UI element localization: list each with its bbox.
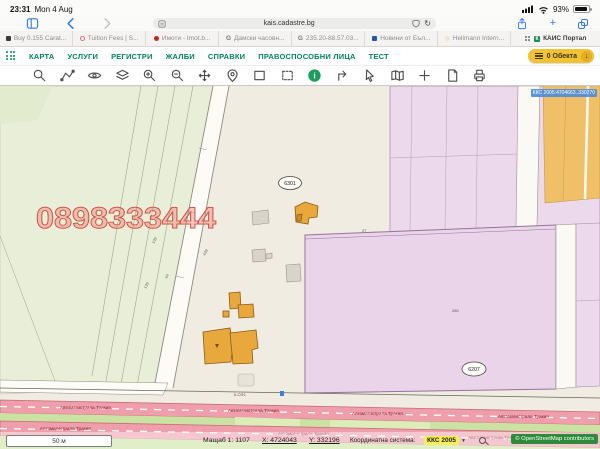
svg-text:Автомагистрала Тракия: Автомагистрала Тракия xyxy=(228,408,279,413)
chevron-down-icon[interactable]: ▼ xyxy=(461,438,466,444)
print-icon[interactable] xyxy=(472,68,487,83)
wifi-icon xyxy=(538,5,549,14)
download-icon[interactable]: ↓ xyxy=(581,51,592,62)
ipad-screen: 23:31 Mon 4 Aug 93% xyxy=(0,0,600,449)
road-designation: 6-ОФ1 xyxy=(234,392,247,397)
tab-favicon xyxy=(154,36,159,41)
back-button-icon[interactable] xyxy=(65,17,76,30)
info-tool-icon[interactable]: i xyxy=(307,68,322,83)
clock: 23:31 xyxy=(10,5,30,14)
battery-percent: 93% xyxy=(553,5,569,14)
tab-label: Новини от Бъл... xyxy=(380,35,430,42)
layers-icon[interactable] xyxy=(115,68,130,83)
page-settings-icon[interactable] xyxy=(158,20,166,28)
coordinate-x: X: 4724043 xyxy=(262,437,297,444)
svg-text:Автомагистрала Тракия: Автомагистрала Тракия xyxy=(60,405,111,410)
zoom-in-icon[interactable] xyxy=(142,68,157,83)
industrial-area xyxy=(543,86,600,203)
tab-hellmann[interactable]: Hellmann Intern... xyxy=(438,31,511,46)
osm-attribution[interactable]: © OpenStreetMap contributors xyxy=(511,434,598,444)
measure-line-icon[interactable] xyxy=(60,68,75,83)
tab-label: Tuition Fees | S... xyxy=(88,35,139,42)
pan-icon[interactable] xyxy=(197,68,212,83)
visibility-eye-icon[interactable] xyxy=(87,68,102,83)
svg-text:Автомагистрала Тракия: Автомагистрала Тракия xyxy=(498,414,549,419)
tab-label: Имоти - Imot.b... xyxy=(162,35,210,42)
tab-favicon xyxy=(80,36,85,41)
tab-favicon xyxy=(6,36,11,41)
nav-item-karta[interactable]: КАРТА xyxy=(29,52,54,61)
parcel-number: 280 xyxy=(452,308,459,313)
nav-item-spravki[interactable]: СПРАВКИ xyxy=(208,52,245,61)
tab-label: Дамски часовн... xyxy=(234,35,284,42)
browser-toolbar: kais.cadastre.bg ↻ + xyxy=(0,16,600,31)
nav-item-test[interactable]: ТЕСТ xyxy=(369,52,389,61)
add-icon[interactable] xyxy=(417,68,432,83)
tab-favicon xyxy=(372,36,377,41)
grid-icon xyxy=(525,36,531,42)
kais-favicon: К xyxy=(534,36,540,42)
svg-text:Автомагистрала Тракия: Автомагистрала Тракия xyxy=(352,411,403,416)
document-icon[interactable] xyxy=(445,68,460,83)
scale-bar-label: 50 м xyxy=(52,438,66,445)
district-label-6301: 6301 xyxy=(284,181,296,187)
tab-label: КАИС Портал xyxy=(543,35,586,42)
tab-numbers[interactable]: G 235.20-88.57.03... xyxy=(292,31,365,46)
select-rectangle-icon[interactable] xyxy=(252,68,267,83)
pointer-icon[interactable] xyxy=(362,68,377,83)
map-book-icon[interactable] xyxy=(390,68,405,83)
right-road-strip xyxy=(556,223,600,389)
share-icon[interactable] xyxy=(516,17,528,30)
map-marker-icon xyxy=(280,391,284,396)
nav-item-registri[interactable]: РЕГИСТРИ xyxy=(111,52,152,61)
select-area-icon[interactable] xyxy=(280,68,295,83)
export-arrow-icon[interactable] xyxy=(335,68,350,83)
reload-icon[interactable]: ↻ xyxy=(424,20,431,28)
tab-label: 235.20-88.57.03... xyxy=(306,35,359,42)
url-text[interactable]: kais.cadastre.bg xyxy=(166,20,412,27)
menu-icon xyxy=(535,53,543,60)
tab-label: Hellmann Intern... xyxy=(453,35,504,42)
scale-bar: 50 м xyxy=(6,435,112,447)
tab-watches[interactable]: G Дамски часовн... xyxy=(219,31,292,46)
coordinate-y: Y: 332196 xyxy=(309,437,340,444)
objects-button[interactable]: 0 Обекта ↓ xyxy=(528,49,594,63)
cellular-icon xyxy=(522,5,534,13)
coordinate-tooltip: ККС 2005:4704663..330270 xyxy=(531,89,597,97)
tab-news[interactable]: Новини от Бъл... xyxy=(365,31,438,46)
svg-text:Автомагистрала Тракия: Автомагистрала Тракия xyxy=(40,426,91,431)
nav-item-zhalbi[interactable]: ЖАЛБИ xyxy=(166,52,195,61)
large-urban-parcel[interactable]: 27 280 6207 xyxy=(305,225,556,393)
district-6301: 6301 xyxy=(279,177,302,190)
date: Mon 4 Aug xyxy=(34,5,72,14)
map-scale: Мащаб 1: 1107 xyxy=(203,437,250,444)
tab-favicon xyxy=(445,36,450,41)
battery-icon xyxy=(573,5,590,13)
sidebar-toggle-icon[interactable] xyxy=(26,17,39,30)
tab-overview-icon[interactable] xyxy=(578,19,588,29)
tab-tuition-fees[interactable]: Tuition Fees | S... xyxy=(73,31,146,46)
objects-count: 0 Обекта xyxy=(547,53,577,60)
tab-buy-carat[interactable]: Buy 0.155 Carat... xyxy=(0,31,73,46)
nav-item-uslugi[interactable]: УСЛУГИ xyxy=(67,52,98,61)
apps-grid-icon[interactable] xyxy=(6,51,16,61)
google-favicon: G xyxy=(298,35,303,42)
tab-kais-portal[interactable]: К КАИС Портал xyxy=(511,31,600,46)
district-label-6207: 6207 xyxy=(468,367,480,373)
map-toolbar: i xyxy=(0,66,600,86)
forward-button-icon[interactable] xyxy=(102,17,113,30)
search-icon[interactable] xyxy=(32,68,47,83)
svg-text:i: i xyxy=(313,71,315,81)
phone-watermark: 0898333444 xyxy=(36,202,216,235)
new-tab-button[interactable]: + xyxy=(550,18,556,29)
tab-label: Buy 0.155 Carat... xyxy=(14,35,66,42)
urban-area-top-right xyxy=(390,86,600,233)
privacy-shield-icon[interactable] xyxy=(412,19,420,28)
google-favicon: G xyxy=(226,35,231,42)
site-nav: КАРТА УСЛУГИ РЕГИСТРИ ЖАЛБИ СПРАВКИ ПРАВ… xyxy=(0,47,600,66)
nav-item-pravosposobni[interactable]: ПРАВОСПОСОБНИ ЛИЦА xyxy=(258,52,355,61)
coord-system-label: Координатна система: xyxy=(350,437,415,444)
cadastre-map[interactable]: 139 44 139 439 xyxy=(0,86,600,449)
location-pin-icon[interactable] xyxy=(225,68,240,83)
address-bar[interactable]: kais.cadastre.bg ↻ xyxy=(153,18,436,29)
map-status-bar: 50 м Мащаб 1: 1107 X: 4724043 Y: 332196 … xyxy=(0,432,600,449)
tab-strip: Buy 0.155 Carat... Tuition Fees | S... И… xyxy=(0,31,600,47)
ios-status-bar: 23:31 Mon 4 Aug 93% xyxy=(0,0,600,16)
parcel-number: 27 xyxy=(362,228,367,233)
zoom-out-icon[interactable] xyxy=(170,68,185,83)
tab-imot[interactable]: Имоти - Imot.b... xyxy=(146,31,219,46)
map-canvas[interactable]: 139 44 139 439 xyxy=(0,86,600,449)
footer-search-icon[interactable] xyxy=(479,437,486,444)
coord-system-select[interactable]: ККС 2005 xyxy=(424,436,459,445)
